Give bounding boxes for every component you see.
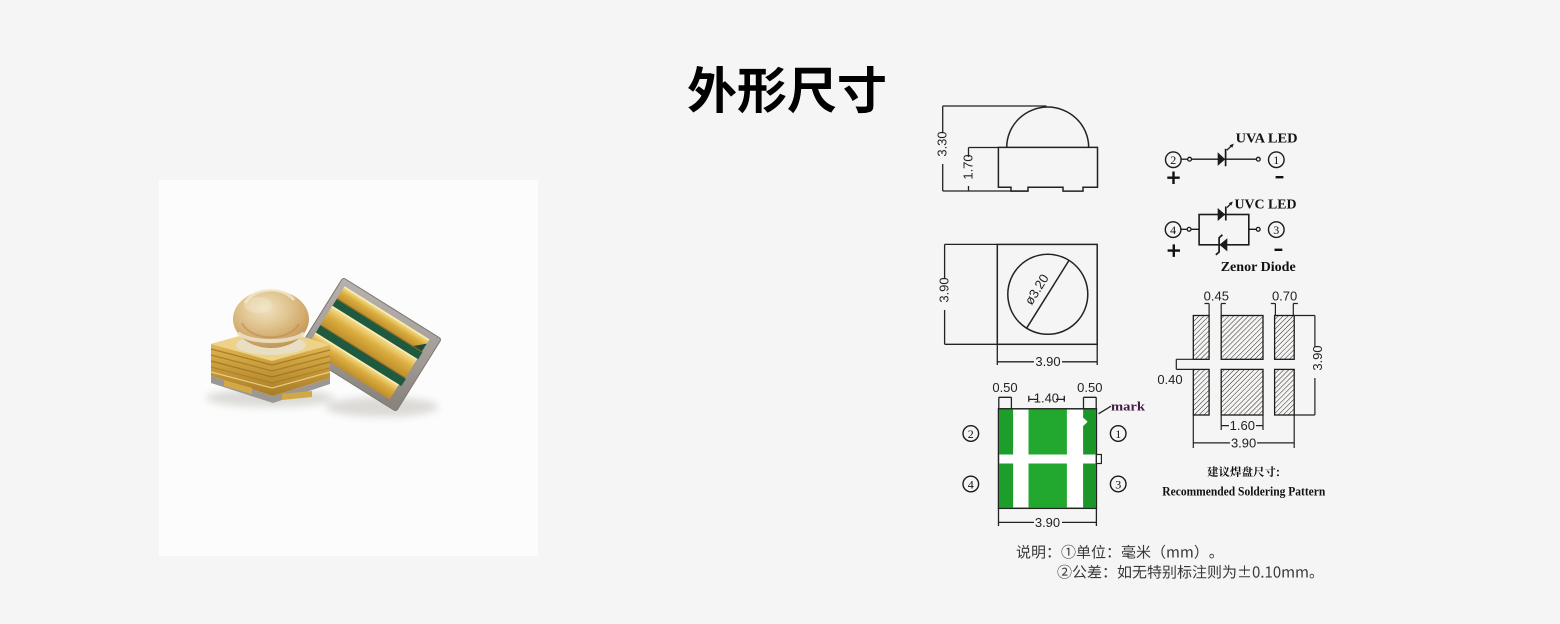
svg-text:1: 1 (1115, 427, 1121, 441)
svg-text:2: 2 (1170, 153, 1176, 167)
svg-text:1.40: 1.40 (1034, 390, 1059, 405)
svg-text:3.90: 3.90 (936, 277, 951, 302)
svg-text:3.90: 3.90 (1035, 354, 1060, 369)
svg-text:UVC LED: UVC LED (1235, 197, 1297, 212)
svg-text:0.70: 0.70 (1272, 288, 1297, 303)
svg-text:Zenor Diode: Zenor Diode (1221, 260, 1296, 275)
svg-text:mark: mark (1111, 399, 1146, 414)
svg-text:2: 2 (968, 427, 974, 441)
svg-text:4: 4 (1170, 223, 1176, 237)
svg-text:0.40: 0.40 (1157, 372, 1182, 387)
svg-text:UVA LED: UVA LED (1236, 132, 1298, 147)
svg-text:3.90: 3.90 (1035, 515, 1060, 530)
svg-text:3: 3 (1273, 223, 1279, 237)
svg-text:3.30: 3.30 (934, 131, 949, 156)
svg-text:3.90: 3.90 (1231, 436, 1256, 451)
svg-text:0.50: 0.50 (1077, 380, 1102, 395)
svg-text:1.70: 1.70 (960, 154, 975, 179)
svg-text:3.90: 3.90 (1310, 345, 1325, 370)
svg-text:Recommended Soldering Pattern: Recommended Soldering Pattern (1162, 483, 1326, 498)
svg-text:1: 1 (1273, 153, 1279, 167)
svg-text:1.60: 1.60 (1230, 418, 1255, 433)
svg-text:4: 4 (968, 477, 974, 491)
svg-text:0.45: 0.45 (1204, 288, 1229, 303)
svg-text:3: 3 (1115, 477, 1121, 491)
svg-text:0.50: 0.50 (992, 380, 1017, 395)
